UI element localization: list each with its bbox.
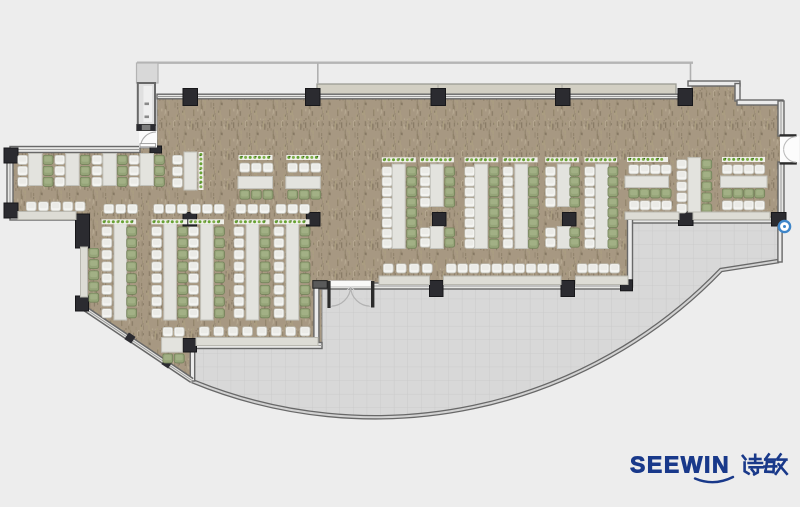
svg-text:SEEWIN: SEEWIN: [630, 452, 729, 478]
